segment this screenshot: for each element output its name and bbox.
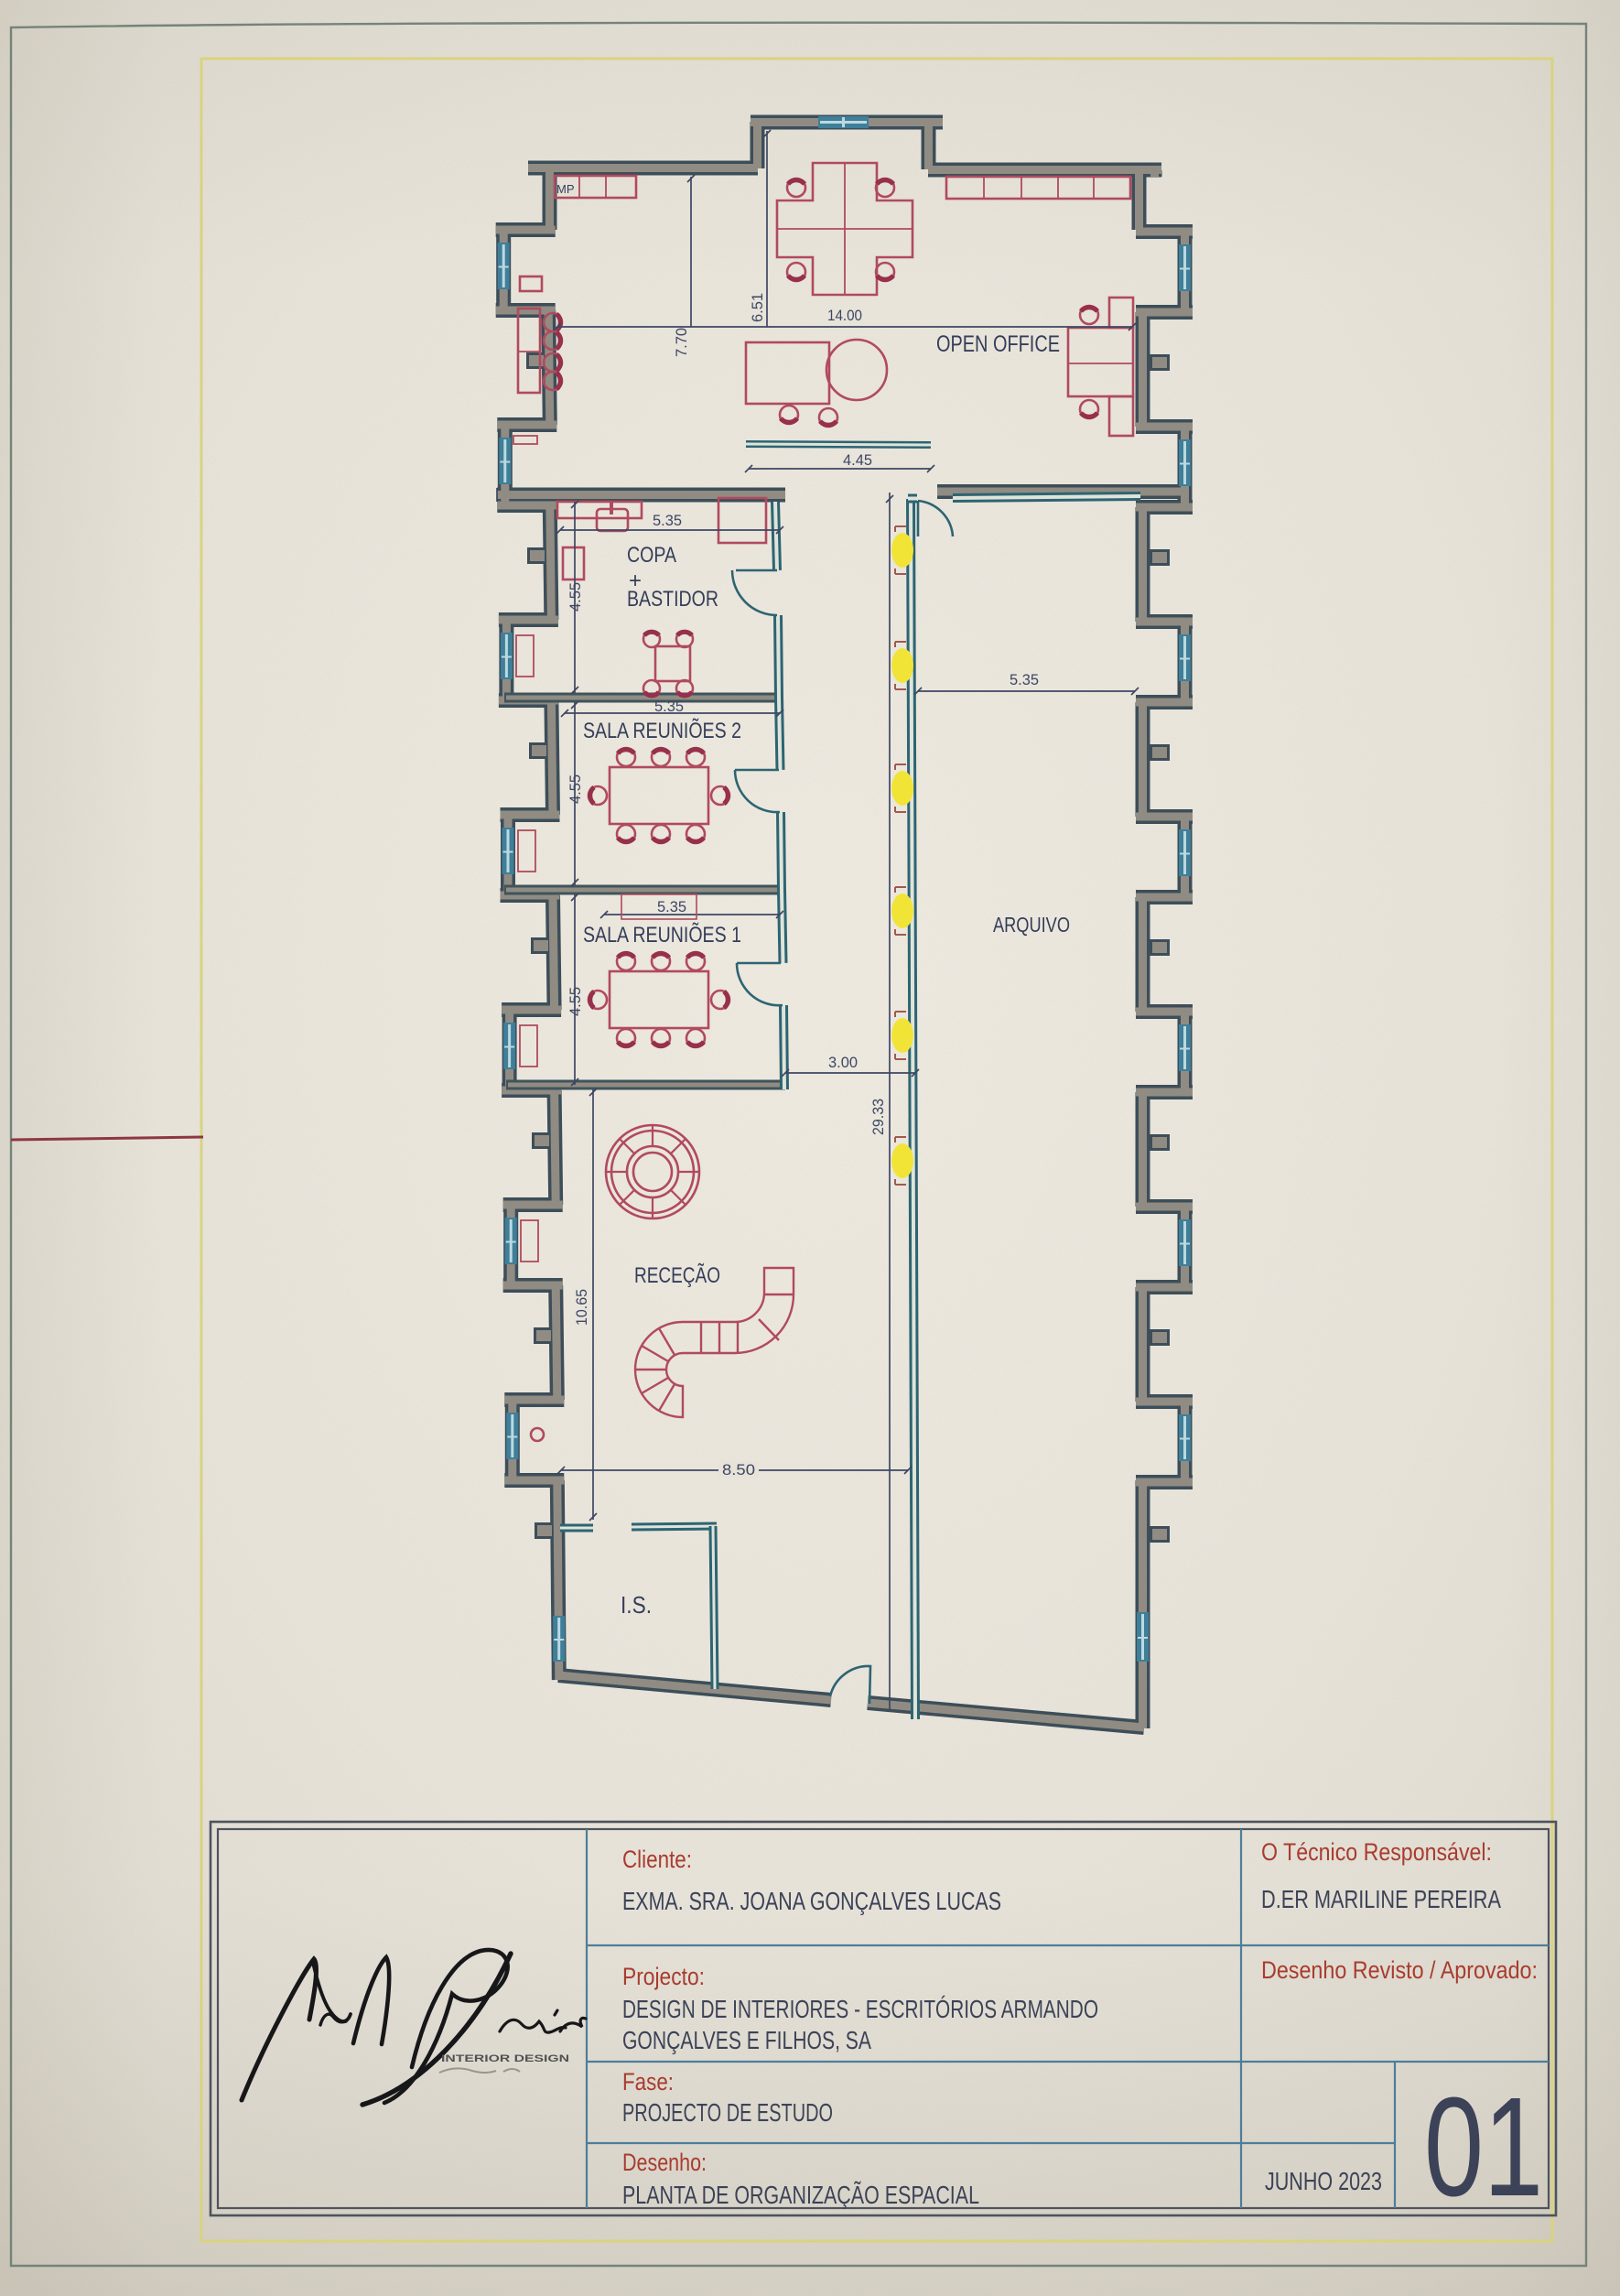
svg-text:01: 01	[1424, 2068, 1543, 2226]
svg-text:10.65: 10.65	[573, 1289, 590, 1326]
svg-text:JUNHO 2023: JUNHO 2023	[1265, 2167, 1382, 2195]
svg-text:EXMA. SRA. JOANA GONÇALVES LUC: EXMA. SRA. JOANA GONÇALVES LUCAS	[622, 1887, 1001, 1915]
svg-text:I.S.: I.S.	[621, 1591, 652, 1619]
svg-text:ARQUIVO: ARQUIVO	[993, 913, 1070, 937]
svg-text:MP: MP	[556, 182, 575, 196]
svg-text:PLANTA DE ORGANIZAÇÃO ESPACIAL: PLANTA DE ORGANIZAÇÃO ESPACIAL	[622, 2181, 979, 2209]
svg-text:3.00: 3.00	[828, 1054, 858, 1071]
svg-text:SALA REUNIÕES 2: SALA REUNIÕES 2	[583, 718, 741, 743]
svg-text:RECEÇÃO: RECEÇÃO	[634, 1263, 720, 1288]
svg-text:4.55: 4.55	[567, 582, 584, 612]
svg-text:Desenho:: Desenho:	[622, 2149, 707, 2176]
svg-text:5.35: 5.35	[1010, 671, 1039, 688]
svg-text:5.35: 5.35	[653, 512, 682, 529]
svg-text:Desenho Revisto / Aprovado:: Desenho Revisto / Aprovado:	[1261, 1956, 1538, 1984]
svg-text:4.55: 4.55	[567, 987, 584, 1016]
svg-text:Projecto:: Projecto:	[622, 1963, 705, 1990]
svg-text:5.35: 5.35	[654, 698, 684, 715]
svg-text:D.ER MARILINE PEREIRA: D.ER MARILINE PEREIRA	[1261, 1885, 1501, 1913]
svg-text:8.50: 8.50	[722, 1461, 755, 1478]
svg-text:SALA REUNIÕES 1: SALA REUNIÕES 1	[583, 922, 741, 948]
svg-text:4.55: 4.55	[567, 774, 584, 804]
svg-text:29.33: 29.33	[869, 1099, 887, 1135]
svg-text:Cliente:: Cliente:	[622, 1846, 692, 1873]
svg-text:5.35: 5.35	[657, 898, 686, 915]
svg-text:Fase:: Fase:	[622, 2068, 674, 2096]
svg-text:PROJECTO DE ESTUDO: PROJECTO DE ESTUDO	[622, 2098, 833, 2127]
svg-text:INTERIOR DESIGN: INTERIOR DESIGN	[441, 2053, 569, 2064]
svg-text:7.70: 7.70	[673, 328, 690, 357]
svg-text:OPEN OFFICE: OPEN OFFICE	[936, 331, 1060, 357]
svg-text:O Técnico Responsável:: O Técnico Responsável:	[1261, 1838, 1492, 1866]
svg-text:6.51: 6.51	[749, 293, 766, 322]
svg-text:14.00: 14.00	[827, 307, 862, 324]
svg-text:COPA: COPA	[627, 543, 676, 568]
svg-text:BASTIDOR: BASTIDOR	[627, 587, 718, 612]
svg-text:GONÇALVES E FILHOS, SA: GONÇALVES E FILHOS, SA	[622, 2026, 871, 2054]
svg-text:DESIGN DE INTERIORES - ESCRITÓ: DESIGN DE INTERIORES - ESCRITÓRIOS ARMAN…	[622, 1995, 1098, 2023]
svg-text:4.45: 4.45	[843, 451, 872, 469]
